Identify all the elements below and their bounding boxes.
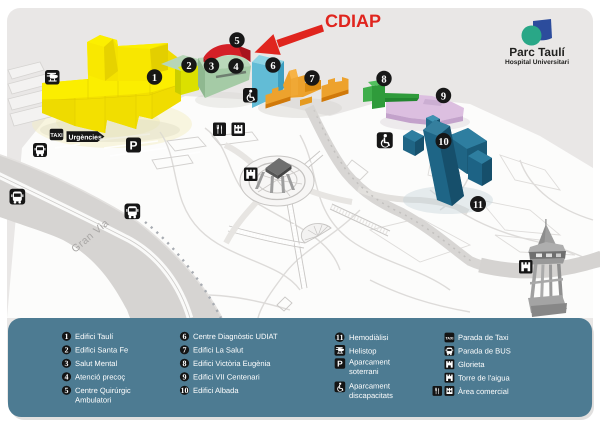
svg-text:1: 1: [65, 332, 69, 341]
svg-text:3: 3: [65, 359, 69, 368]
svg-text:Parc Taulí: Parc Taulí: [509, 45, 565, 59]
svg-text:discapacitats: discapacitats: [349, 391, 393, 400]
svg-text:Salut Mental: Salut Mental: [75, 359, 118, 368]
svg-text:Centre Quirúrgic: Centre Quirúrgic: [75, 386, 131, 395]
svg-text:Atenció precoç: Atenció precoç: [75, 373, 125, 382]
svg-text:Parada de Taxi: Parada de Taxi: [458, 333, 509, 342]
svg-text:Urgències: Urgències: [69, 134, 102, 142]
svg-text:Glorieta: Glorieta: [458, 360, 485, 369]
svg-text:Parada de BUS: Parada de BUS: [458, 347, 511, 356]
svg-text:Edifici Albada: Edifici Albada: [193, 386, 239, 395]
svg-text:11: 11: [473, 200, 483, 211]
svg-text:Aparcament: Aparcament: [349, 382, 391, 391]
svg-text:6: 6: [183, 332, 187, 341]
svg-text:Edifici Taulí: Edifici Taulí: [75, 332, 114, 341]
svg-text:1: 1: [152, 73, 157, 84]
svg-text:Aparcament: Aparcament: [349, 358, 391, 367]
svg-text:7: 7: [183, 346, 187, 355]
svg-text:Àrea comercial: Àrea comercial: [458, 387, 509, 396]
svg-text:11: 11: [336, 333, 344, 342]
svg-text:Torre de l'aigua: Torre de l'aigua: [458, 374, 510, 383]
svg-text:5: 5: [234, 36, 239, 47]
svg-text:Edifici Santa Fe: Edifici Santa Fe: [75, 346, 128, 355]
svg-text:soterrani: soterrani: [349, 367, 379, 376]
svg-text:6: 6: [270, 61, 275, 72]
svg-text:3: 3: [209, 61, 214, 72]
svg-text:Ambulatori: Ambulatori: [75, 396, 112, 405]
svg-text:2: 2: [186, 61, 191, 72]
svg-text:Centre Diagnòstic UDIAT: Centre Diagnòstic UDIAT: [193, 332, 278, 341]
svg-text:2: 2: [65, 346, 69, 355]
svg-text:Hospital Universitari: Hospital Universitari: [505, 59, 569, 66]
svg-text:4: 4: [233, 62, 239, 73]
svg-text:CDIAP: CDIAP: [325, 11, 381, 31]
svg-text:8: 8: [183, 359, 187, 368]
svg-text:Edifici La Salut: Edifici La Salut: [193, 346, 244, 355]
svg-text:Helistop: Helistop: [349, 347, 376, 356]
svg-text:10: 10: [438, 137, 449, 148]
svg-text:4: 4: [65, 373, 69, 382]
svg-text:Hemodiàlisi: Hemodiàlisi: [349, 333, 389, 342]
svg-text:9: 9: [441, 91, 446, 102]
svg-text:Edifici VII Centenari: Edifici VII Centenari: [193, 373, 260, 382]
svg-text:TAXI: TAXI: [445, 336, 453, 340]
svg-text:5: 5: [65, 386, 69, 395]
svg-text:7: 7: [309, 74, 314, 85]
svg-text:Edifici Victòria Eugènia: Edifici Victòria Eugènia: [193, 359, 271, 368]
svg-text:10: 10: [181, 386, 189, 395]
svg-text:9: 9: [183, 373, 187, 382]
svg-text:8: 8: [381, 74, 386, 85]
